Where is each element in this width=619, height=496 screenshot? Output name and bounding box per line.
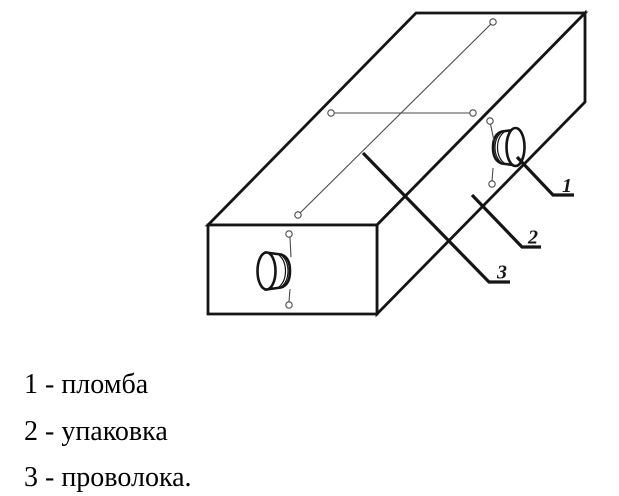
sealed-packaging-diagram: 1 2 3 [0, 0, 619, 360]
legend: 1 - пломба 2 - упаковка 3 - проволока. [24, 362, 192, 496]
callout-1-label: 1 [562, 175, 572, 197]
box-front-face [208, 225, 377, 314]
wire-eyelet [286, 302, 292, 308]
wire-eyelet [470, 110, 476, 116]
wire-eyelet [328, 110, 334, 116]
legend-item-plomba: 1 - пломба [24, 362, 192, 409]
wire-eyelet [490, 19, 496, 25]
wire-eyelet [286, 231, 292, 237]
callout-labels: 1 2 3 [496, 175, 572, 284]
callout-2-label: 2 [527, 227, 538, 249]
wire-eyelet [489, 181, 495, 187]
legend-item-provoloka: 3 - проволока. [24, 455, 192, 496]
wire-eyelet [487, 118, 493, 124]
seal-front [258, 253, 291, 290]
callout-3-label: 3 [496, 262, 507, 284]
sealed-packaging-diagram-page: 1 2 3 1 - пломба 2 - упаковка 3 - провол… [0, 0, 619, 496]
seal-front-face-disc [258, 253, 276, 290]
legend-item-upakovka: 2 - упаковка [24, 409, 192, 456]
wire-eyelet [295, 212, 301, 218]
